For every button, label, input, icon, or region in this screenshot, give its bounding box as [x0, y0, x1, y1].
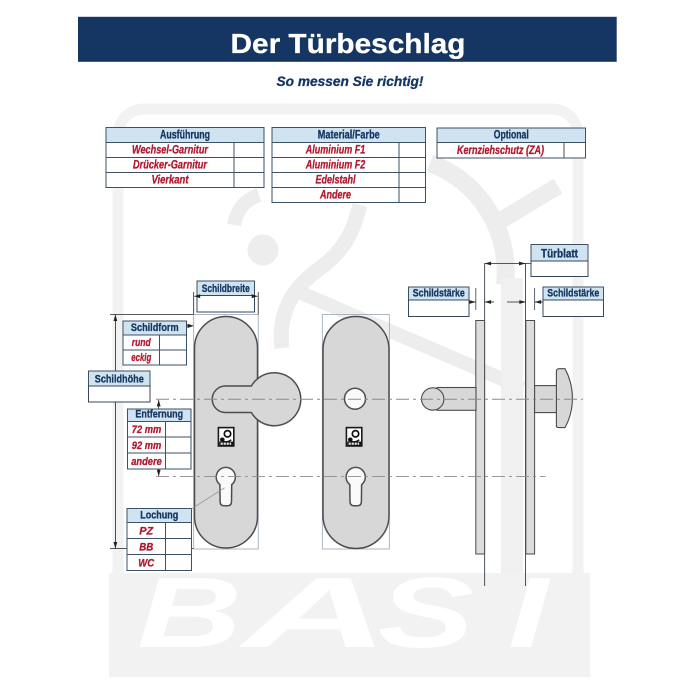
svg-text:PZ: PZ	[139, 525, 154, 537]
svg-text:Edelstahl: Edelstahl	[316, 173, 357, 186]
svg-text:Lochung: Lochung	[140, 510, 178, 522]
svg-text:Schildform: Schildform	[131, 322, 179, 334]
svg-text:Schildbreite: Schildbreite	[202, 283, 250, 295]
svg-text:Andere: Andere	[319, 188, 351, 201]
svg-text:Entfernung: Entfernung	[135, 409, 183, 421]
svg-text:Vierkant: Vierkant	[152, 173, 190, 186]
svg-text:I: I	[508, 557, 551, 669]
svg-text:BB: BB	[139, 541, 153, 553]
svg-text:Der Türbeschlag: Der Türbeschlag	[231, 28, 466, 59]
svg-text:Optional: Optional	[494, 129, 529, 142]
svg-text:Drücker-Garnitur: Drücker-Garnitur	[133, 158, 208, 171]
svg-text:andere: andere	[131, 456, 162, 468]
svg-text:72 mm: 72 mm	[132, 424, 161, 436]
svg-text:Material/Farbe: Material/Farbe	[318, 129, 380, 142]
svg-text:A: A	[237, 557, 389, 669]
svg-text:Ausführung: Ausführung	[160, 129, 210, 142]
svg-text:Schildstärke: Schildstärke	[413, 287, 465, 299]
svg-text:B: B	[137, 557, 242, 669]
svg-text:rund: rund	[132, 337, 152, 349]
svg-text:Kernziehschutz (ZA): Kernziehschutz (ZA)	[457, 144, 544, 157]
svg-text:Aluminium F1: Aluminium F1	[305, 143, 365, 156]
svg-text:Aluminium F2: Aluminium F2	[305, 158, 366, 171]
svg-text:Wechsel-Garnitur: Wechsel-Garnitur	[132, 143, 209, 156]
svg-text:So messen Sie richtig!: So messen Sie richtig!	[277, 74, 424, 89]
svg-text:eckig: eckig	[131, 352, 151, 364]
svg-text:Schildhöhe: Schildhöhe	[95, 373, 144, 385]
svg-text:Schildstärke: Schildstärke	[547, 287, 599, 299]
svg-text:Türblatt: Türblatt	[541, 248, 578, 260]
svg-text:S: S	[378, 557, 474, 669]
svg-text:92 mm: 92 mm	[132, 440, 161, 452]
svg-text:WC: WC	[138, 557, 155, 569]
